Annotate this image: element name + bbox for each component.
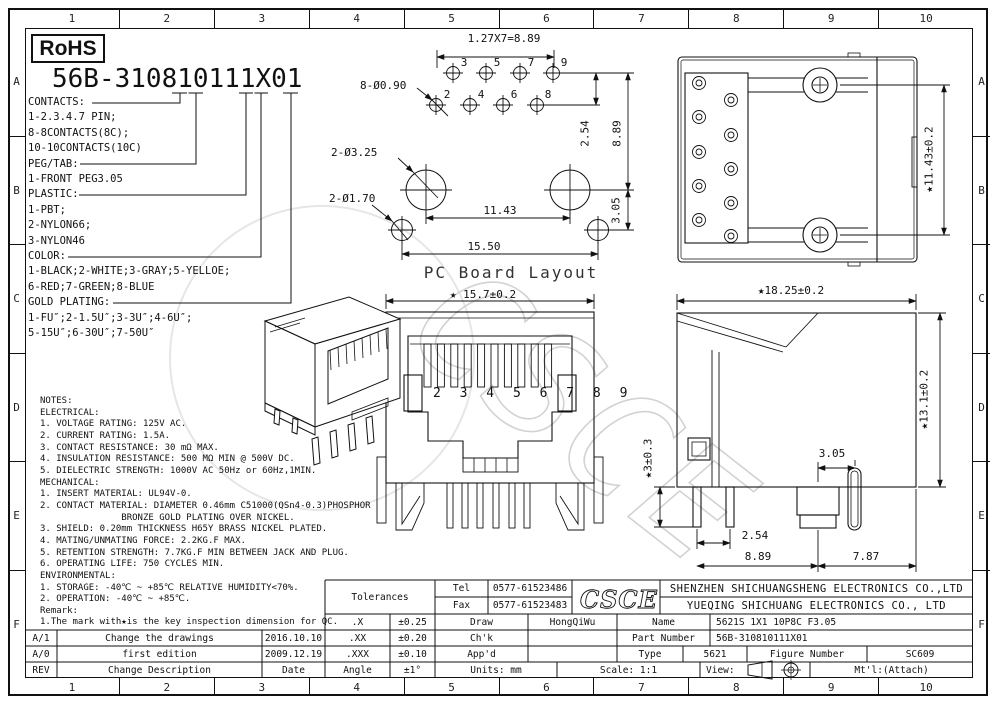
ruler-number: 4 [310, 8, 405, 28]
ruler-number: 9 [784, 678, 879, 696]
rev-description: Change the drawings [57, 630, 262, 646]
pcb-pin-label: 2 [440, 88, 454, 101]
draw-value: HongQiWu [528, 614, 617, 630]
ruler-number: 1 [25, 678, 120, 696]
pcb-pin-label: 6 [507, 88, 521, 101]
ruler-number: 6 [500, 678, 595, 696]
material-label: Mt'l:(Attach) [810, 662, 973, 678]
part-number-value: 56B-310810111X01 [710, 630, 973, 646]
notes-block: NOTES:ELECTRICAL:1. VOLTAGE RATING: 125V… [40, 396, 371, 629]
rev-header-date: Date [262, 662, 325, 678]
rev-id: A/0 [25, 646, 57, 662]
ruler-letter: B [973, 137, 990, 246]
rev-date: 2016.10.10 [262, 630, 325, 646]
pcb-pin-label: 7 [524, 56, 538, 69]
ruler-number: 8 [689, 8, 784, 28]
appd-label: App'd [435, 646, 528, 662]
note-line: 6. OPERATING LIFE: 750 CYCLES MIN. [40, 559, 371, 571]
ruler-letter: A [8, 28, 25, 137]
rev-date: 2009.12.19 [262, 646, 325, 662]
dim-row-gap: 2.54 [579, 117, 592, 151]
ruler-number: 10 [879, 678, 973, 696]
ruler-number: 6 [500, 8, 595, 28]
pcb-pin-label: 4 [474, 88, 488, 101]
rev-description: first edition [57, 646, 262, 662]
ruler-number: 2 [120, 678, 215, 696]
note-line: MECHANICAL: [40, 478, 371, 490]
figure-number-value: SC609 [867, 646, 973, 662]
note-line: 2. CURRENT RATING: 1.5A. [40, 431, 371, 443]
ruler-bottom: 12345678910 [25, 678, 973, 696]
note-line: NOTES: [40, 396, 371, 408]
rev-header-description: Change Description [57, 662, 262, 678]
ruler-number: 7 [594, 8, 689, 28]
legend-line: PLASTIC: [28, 187, 230, 202]
front-view-pin-numbers: 2 3 4 5 6 7 8 9 [433, 386, 633, 401]
ruler-letter: D [973, 354, 990, 463]
ruler-number: 3 [215, 8, 310, 28]
dim-total: 15.50 [464, 240, 504, 253]
ruler-letter: C [973, 245, 990, 354]
legend-line: 1-FU″;2-1.5U″;3-3U″;4-6U″; [28, 311, 230, 326]
dim-small-holes: 2-Ø1.70 [329, 192, 375, 205]
legend-line: 5-15U″;6-30U″;7-50U″ [28, 326, 230, 341]
part-number-label: Part Number [617, 630, 710, 646]
dim-pitch: 1.27X7=8.89 [454, 32, 554, 45]
legend-line: 6-RED;7-GREEN;8-BLUE [28, 280, 230, 295]
figure-number-label: Figure Number [747, 646, 867, 662]
legend-line: 1-2.3.4.7 PIN; [28, 110, 230, 125]
note-line: 4. INSULATION RESISTANCE: 500 MΩ MIN @ 5… [40, 454, 371, 466]
chk-label: Ch'k [435, 630, 528, 646]
note-line: 1. INSERT MATERIAL: UL94V-0. [40, 489, 371, 501]
ruler-letter: F [973, 571, 990, 679]
tol-angle-label: Angle [325, 662, 390, 678]
dim-mid: 11.43 [480, 204, 520, 217]
name-label: Name [617, 614, 710, 630]
side-view-leg-dim: ★3±0.3 [642, 431, 655, 487]
side-view-left-span-dim: 8.89 [738, 550, 778, 563]
ruler-number: 8 [689, 678, 784, 696]
ruler-number: 7 [594, 678, 689, 696]
ruler-number: 5 [405, 8, 500, 28]
tel-value: 0577-61523486 [488, 580, 572, 597]
ruler-top: 12345678910 [25, 8, 973, 28]
note-line: 1. VOLTAGE RATING: 125V AC. [40, 419, 371, 431]
front-view-width-dim: ★ 15.7±0.2 [428, 288, 538, 301]
dim-holes: 8-Ø0.90 [360, 79, 406, 92]
company-name-1: SHENZHEN SHICHUANGSHENG ELECTRONICS CO.,… [660, 580, 973, 597]
note-line: 4. MATING/UNMATING FORCE: 2.2KG.F MAX. [40, 536, 371, 548]
ruler-number: 2 [120, 8, 215, 28]
note-line: ENVIRONMENTAL: [40, 571, 371, 583]
pcb-pin-label: 5 [490, 56, 504, 69]
fax-label: Fax [435, 597, 488, 614]
note-line: 2. CONTACT MATERIAL: DIAMETER 0.46mm C51… [40, 501, 371, 513]
pcb-pin-label: 9 [557, 56, 571, 69]
note-line: ELECTRICAL: [40, 408, 371, 420]
tol-xx-label: .XX [325, 630, 390, 646]
type-value: 5621 [683, 646, 747, 662]
ruler-letter: E [8, 462, 25, 571]
rohs-badge: RoHS [31, 34, 105, 63]
tol-angle-value: ±1° [390, 662, 435, 678]
legend-line: 10-10CONTACTS(10C) [28, 141, 230, 156]
ruler-letter: C [8, 245, 25, 354]
fax-value: 0577-61523483 [488, 597, 572, 614]
dim-offset: 3.05 [610, 194, 623, 228]
pcb-layout-title: PC Board Layout [418, 263, 604, 282]
note-line: Remark: [40, 606, 371, 618]
legend-line: 2-NYLON66; [28, 218, 230, 233]
legend-line: 8-8CONTACTS(8C); [28, 126, 230, 141]
ruler-number: 10 [879, 8, 973, 28]
company-name-2: YUEQING SHICHUANG ELECTRONICS CO., LTD [660, 597, 973, 614]
note-line: 3. CONTACT RESISTANCE: 30 mΩ MAX. [40, 443, 371, 455]
top-view-height-dim: ★11.43±0.2 [923, 118, 936, 202]
type-label: Type [617, 646, 683, 662]
engineering-drawing-sheet: CSCE [0, 0, 998, 706]
note-line: 1.The mark with★is the key inspection di… [40, 617, 371, 629]
tol-xx-value: ±0.20 [390, 630, 435, 646]
legend-line: 3-NYLON46 [28, 234, 230, 249]
part-number-legend: CONTACTS:1-2.3.4.7 PIN;8-8CONTACTS(8C);1… [28, 95, 230, 342]
scale-label: Scale: 1:1 [557, 662, 700, 678]
note-line: 3. SHIELD: 0.20mm THICKNESS H65Y BRASS N… [40, 524, 371, 536]
ruler-letter: A [973, 28, 990, 137]
note-line: 1. STORAGE: -40℃ ~ +85℃ RELATIVE HUMIDIT… [40, 583, 371, 595]
ruler-right: ABCDEF [973, 28, 990, 678]
tol-xxx-value: ±0.10 [390, 646, 435, 662]
ruler-letter: E [973, 462, 990, 571]
units-label: Units: mm [435, 662, 557, 678]
note-line: BRONZE GOLD PLATING OVER NICKEL. [40, 513, 371, 525]
ruler-letter: F [8, 571, 25, 679]
tol-x-value: ±0.25 [390, 614, 435, 630]
ruler-number: 1 [25, 8, 120, 28]
ruler-number: 9 [784, 8, 879, 28]
rev-header-id: REV [25, 662, 57, 678]
ruler-number: 5 [405, 678, 500, 696]
ruler-letter: D [8, 354, 25, 463]
legend-line: COLOR: [28, 249, 230, 264]
legend-line: CONTACTS: [28, 95, 230, 110]
pcb-pin-label: 3 [457, 56, 471, 69]
draw-label: Draw [435, 614, 528, 630]
tol-xxx-label: .XXX [325, 646, 390, 662]
tol-x-label: .X [325, 614, 390, 630]
view-label: View: [700, 662, 745, 678]
note-line: 5. DIELECTRIC STRENGTH: 1000V AC 50Hz or… [40, 466, 371, 478]
legend-line: 1-PBT; [28, 203, 230, 218]
part-number-heading: 56B-310810111X01 [52, 64, 302, 94]
rev-id: A/1 [25, 630, 57, 646]
ruler-number: 4 [310, 678, 405, 696]
side-view-height-dim: ★13.1±0.2 [918, 360, 931, 440]
dim-span: 8.89 [611, 117, 624, 151]
ruler-number: 3 [215, 678, 310, 696]
pcb-pin-label: 8 [541, 88, 555, 101]
side-view-width-dim: ★18.25±0.2 [746, 284, 836, 297]
side-view-peg-dim: 3.05 [813, 447, 851, 460]
ruler-letter: B [8, 137, 25, 246]
tel-label: Tel [435, 580, 488, 597]
side-view-right-span-dim: 7.87 [846, 550, 886, 563]
side-view-pitch-dim: 2.54 [736, 529, 774, 542]
legend-line: PEG/TAB: [28, 157, 230, 172]
name-value: 5621S 1X1 10P8C F3.05 [710, 614, 973, 630]
note-line: 5. RETENTION STRENGTH: 7.7KG.F MIN BETWE… [40, 548, 371, 560]
legend-line: 1-BLACK;2-WHITE;3-GRAY;5-YELLOE; [28, 264, 230, 279]
note-line: 2. OPERATION: -40℃ ~ +85℃. [40, 594, 371, 606]
legend-line: 1-FRONT PEG3.05 [28, 172, 230, 187]
tolerances-title: Tolerances [325, 580, 435, 614]
legend-line: GOLD PLATING: [28, 295, 230, 310]
dim-big-holes: 2-Ø3.25 [331, 146, 377, 159]
ruler-left: ABCDEF [8, 28, 25, 678]
